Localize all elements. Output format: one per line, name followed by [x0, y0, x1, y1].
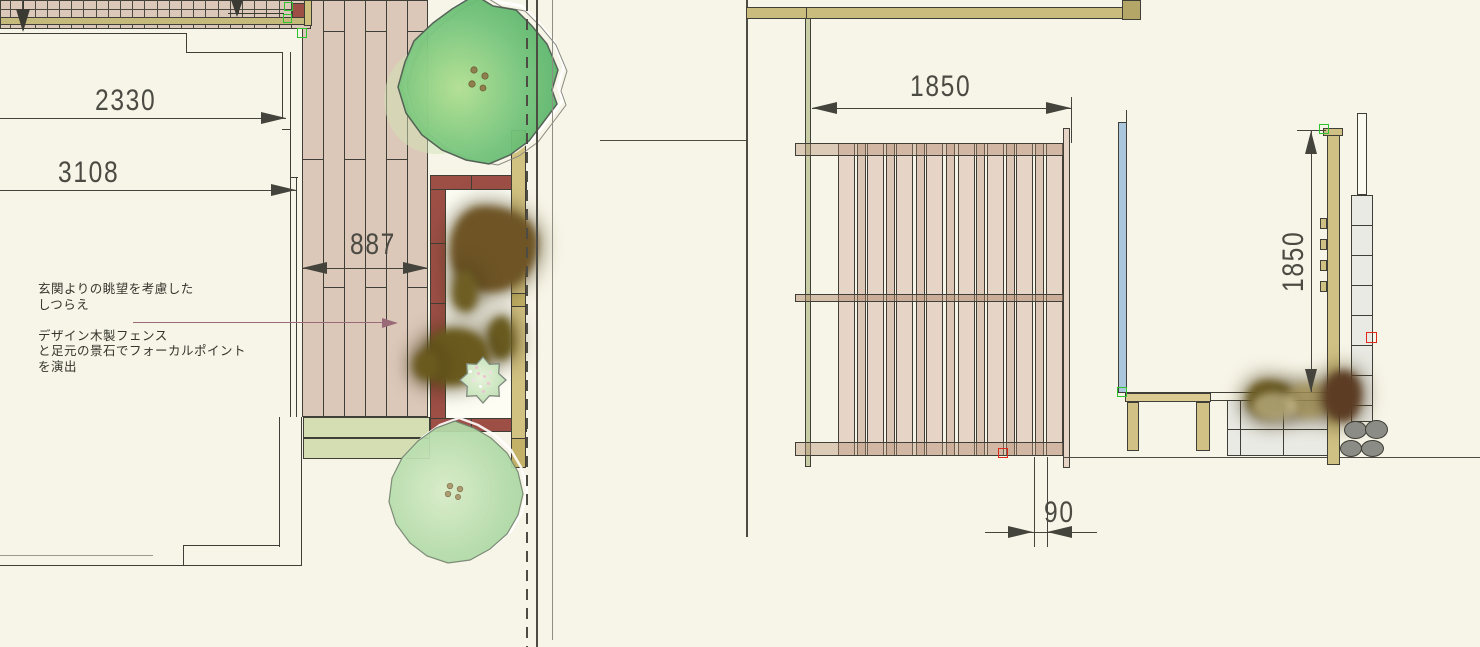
dim-line — [812, 108, 1071, 109]
deck-joint — [323, 31, 344, 32]
ground-link-line — [600, 140, 747, 141]
deck-joint — [344, 159, 365, 160]
handle-green[interactable] — [283, 14, 292, 23]
pillar-seam — [1351, 225, 1373, 226]
drawing-layer — [0, 0, 1480, 647]
handle-red[interactable] — [998, 448, 1008, 458]
deck-joint — [365, 287, 386, 288]
house-line — [282, 52, 283, 118]
post-bracket — [1320, 281, 1327, 292]
house-line — [0, 565, 302, 566]
dim-arrow-line — [23, 0, 24, 30]
house-line — [0, 33, 187, 34]
boundary-line2 — [552, 0, 553, 640]
house-tick — [282, 129, 291, 130]
house-line — [186, 33, 187, 53]
planter-seam — [1240, 400, 1241, 456]
pebble — [1340, 440, 1362, 457]
datum-line2 — [1210, 400, 1227, 401]
dim-2330: 2330 — [95, 84, 156, 118]
handle-green[interactable] — [284, 2, 293, 11]
screen-plan-block — [511, 293, 526, 307]
house-line — [183, 545, 280, 546]
dim-arrow — [1305, 369, 1317, 392]
fence-plan-seam — [430, 303, 446, 304]
screen-panel-line — [1126, 110, 1127, 122]
house-line — [279, 417, 280, 547]
dim-887: 887 — [350, 228, 396, 262]
pillar-seam — [1351, 255, 1373, 256]
ground-line — [1063, 457, 1480, 458]
pillar-seam — [1351, 285, 1373, 286]
deck-joint — [323, 287, 344, 288]
fence-post-right — [1063, 128, 1070, 468]
dim-ext — [1034, 457, 1035, 547]
section-border — [746, 0, 748, 537]
pebble — [1361, 440, 1384, 457]
walkway-mid-seam — [0, 9, 311, 10]
dim-ext — [1071, 97, 1072, 143]
fence-rail-mid — [795, 294, 1065, 302]
cad-drawing-canvas[interactable]: 2330 3108 887 1850 90 1850 玄関よりの眺望を考慮した … — [0, 0, 1480, 647]
house-line — [301, 417, 302, 566]
fence-post-left — [805, 18, 811, 467]
dim-arrow — [403, 262, 428, 274]
handle-green[interactable] — [1319, 124, 1329, 134]
walkway-joist — [0, 17, 311, 25]
header-band-block — [1122, 0, 1141, 20]
fence-rail-top — [795, 143, 1065, 156]
dim-arrow — [302, 262, 327, 274]
post-bracket — [1320, 239, 1327, 250]
house-line — [183, 545, 184, 566]
leader-arrow — [382, 318, 398, 328]
dim-90: 90 — [1044, 496, 1075, 530]
post-bracket — [1320, 260, 1327, 271]
shrub-flowers — [459, 356, 507, 404]
dim-arrow — [812, 102, 837, 114]
dim-line — [228, 13, 284, 14]
handle-green[interactable] — [297, 28, 307, 38]
planter-seam-h — [1227, 429, 1340, 430]
house-line — [186, 52, 283, 53]
dim-3108: 3108 — [58, 156, 119, 190]
dim-line — [0, 190, 296, 191]
dim-line — [985, 532, 1097, 533]
pillar-cap — [1357, 113, 1367, 195]
stone — [1322, 370, 1362, 422]
dim-line — [1311, 131, 1312, 392]
bench-top — [1125, 393, 1211, 402]
dim-line — [0, 118, 286, 119]
stone — [1252, 392, 1297, 420]
stone — [413, 350, 440, 380]
stone — [487, 316, 515, 360]
dim-arrow — [271, 184, 296, 196]
top-tree — [372, 0, 572, 187]
deck-plank-seam — [365, 0, 366, 417]
dim-arrow — [1046, 102, 1071, 114]
house-line — [296, 177, 297, 417]
walkway-end-post — [304, 0, 312, 26]
screen-panel — [1118, 122, 1127, 393]
pillar-seam — [1351, 315, 1373, 316]
deck-plank-seam — [344, 0, 345, 417]
pillar-seam — [1351, 345, 1373, 346]
fence-rail-bottom — [795, 442, 1065, 456]
handle-green[interactable] — [1117, 387, 1127, 397]
leader-line — [133, 322, 387, 323]
stone — [452, 270, 478, 312]
handle-red[interactable] — [1366, 332, 1377, 343]
bottom-tree — [380, 418, 535, 568]
boundary-line — [536, 0, 538, 647]
pebble — [1365, 420, 1388, 439]
down-arrow — [231, 0, 243, 17]
dim-arrow-line — [238, 0, 239, 13]
deck-joint — [302, 159, 323, 160]
boundary-dashed — [526, 0, 528, 647]
dim-1850-height: 1850 — [1277, 231, 1311, 292]
house-line — [290, 52, 291, 417]
dim-1850-width: 1850 — [910, 70, 971, 104]
dim-arrow — [1008, 526, 1033, 538]
bench-leg — [1127, 402, 1139, 451]
annotation-line-2: しつらえ — [38, 294, 89, 313]
bench-leg — [1196, 402, 1210, 451]
dim-arrow — [1305, 131, 1317, 154]
deck-joint — [407, 287, 428, 288]
post-bracket — [1320, 218, 1327, 229]
pebble — [1344, 421, 1367, 439]
annotation-line-5: を演出 — [38, 356, 77, 375]
dim-arrow — [261, 112, 286, 124]
deck-plank-seam — [323, 0, 324, 417]
fence-plan-seam — [430, 243, 446, 244]
eave-line — [0, 555, 153, 556]
